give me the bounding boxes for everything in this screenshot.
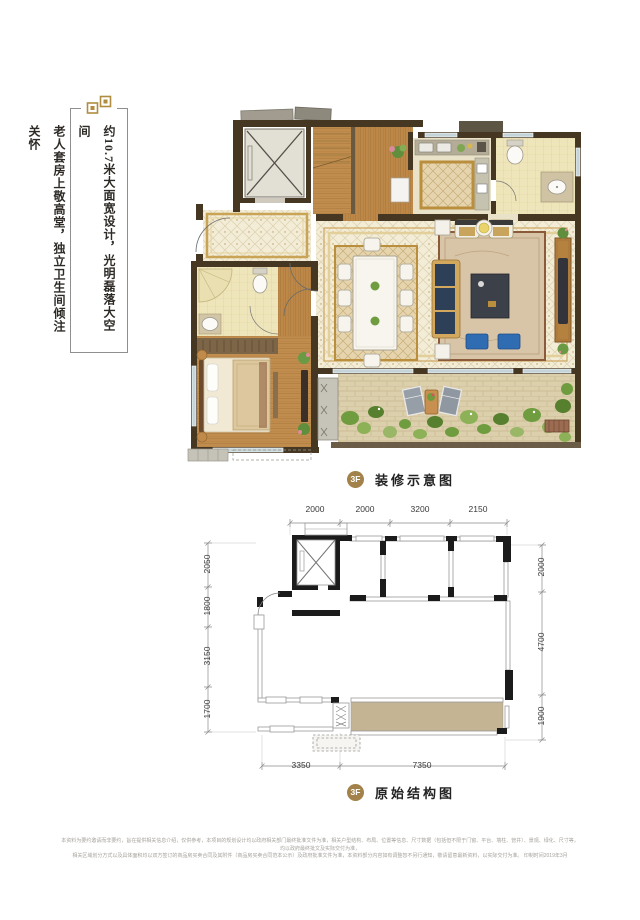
bed xyxy=(197,350,278,442)
disclaimer-line-2: 相关区域划分方式以及具体面积均以双方签订的商品房买卖合同及其附件（商品房买卖合同… xyxy=(60,853,580,861)
brochure-page: 约10.7米大面宽设计，光明磊落大空间 老人套房上敬高堂，独立卫生间倾注关怀 xyxy=(0,0,640,920)
structural-shaft xyxy=(333,703,349,728)
decorated-floor-plan xyxy=(183,106,603,466)
dim-top-1: 2000 xyxy=(295,504,335,514)
dim-right-2: 4700 xyxy=(536,622,546,662)
side-runner xyxy=(555,228,571,355)
dim-top-2: 2000 xyxy=(345,504,385,514)
tagline-box: 约10.7米大面宽设计，光明磊落大空间 老人套房上敬高堂，独立卫生间倾注关怀 xyxy=(70,108,128,353)
sofa-set xyxy=(432,220,545,360)
opening-hall xyxy=(343,214,378,221)
lounge-chairs xyxy=(402,386,461,415)
structural-plan-title: 原始结构图 xyxy=(375,783,455,802)
hall-cabinet xyxy=(391,178,409,202)
dim-bottom-1: 3350 xyxy=(281,760,321,770)
stairs-floor xyxy=(313,127,353,214)
disclaimer: 本资料为要约邀请而非要约，旨在提供相关信息介绍，仅供参考，本项目的规划设计均以政… xyxy=(60,838,580,861)
bedroom-hall-floor xyxy=(278,267,311,336)
floor-badge: 3F xyxy=(347,471,364,488)
dim-right-1: 2000 xyxy=(536,547,546,587)
structural-terrace xyxy=(351,702,503,731)
dim-left-2: 1800 xyxy=(202,586,212,626)
dim-right-3: 1900 xyxy=(536,696,546,736)
decorated-plan-label: 3F 装修示意图 xyxy=(347,470,455,489)
dim-top-4: 2150 xyxy=(458,504,498,514)
elevator-sill xyxy=(255,198,285,203)
structural-ac-platform xyxy=(313,735,360,751)
dim-left-4: 1700 xyxy=(202,689,212,729)
structural-plan-label: 3F 原始结构图 xyxy=(347,783,455,802)
terrace-bench xyxy=(545,420,569,432)
structural-floor-plan xyxy=(200,515,555,775)
disclaimer-line-1: 本资料为要约邀请而非要约，旨在提供相关信息介绍，仅供参考，本项目的规划设计均以政… xyxy=(60,838,580,853)
floor-badge: 3F xyxy=(347,784,364,801)
tagline-text: 约10.7米大面宽设计，光明磊落大空间 老人套房上敬高堂，独立卫生间倾注关怀 xyxy=(71,109,127,352)
dim-top-3: 3200 xyxy=(400,504,440,514)
wardrobe xyxy=(197,338,278,354)
tagline-column-1: 约10.7米大面宽设计，光明磊落大空间 xyxy=(71,125,121,344)
decorated-plan-title: 装修示意图 xyxy=(375,470,455,489)
dim-bottom-2: 7350 xyxy=(402,760,442,770)
tagline-column-2: 老人套房上敬高堂，独立卫生间倾注关怀 xyxy=(21,125,71,344)
kitchen xyxy=(415,140,489,210)
dim-left-1: 2050 xyxy=(202,544,212,584)
elevator xyxy=(245,129,304,197)
dining-set xyxy=(335,238,417,367)
dim-left-3: 3150 xyxy=(202,636,212,676)
